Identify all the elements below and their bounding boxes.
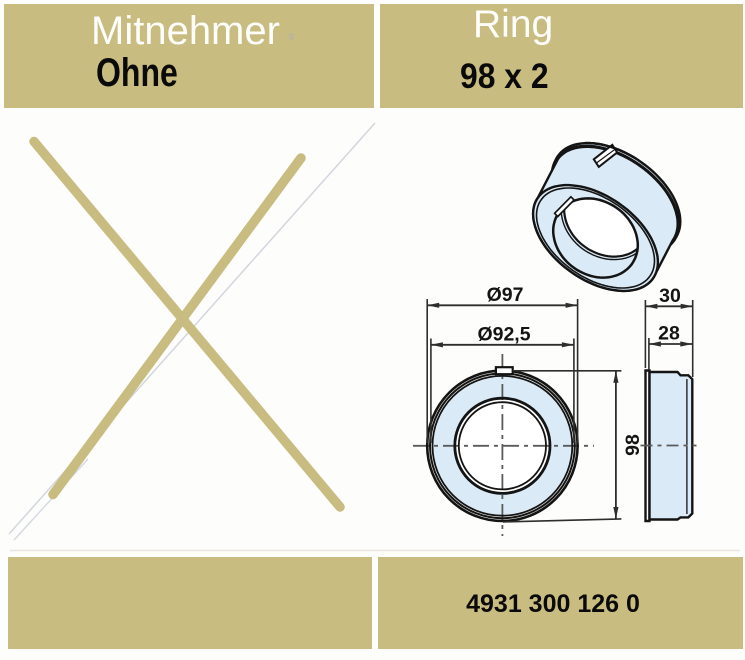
svg-text:Ø92,5: Ø92,5 <box>477 324 530 346</box>
svg-text:Ø97: Ø97 <box>487 284 524 306</box>
svg-text:28: 28 <box>658 323 680 345</box>
svg-text:30: 30 <box>659 285 681 307</box>
